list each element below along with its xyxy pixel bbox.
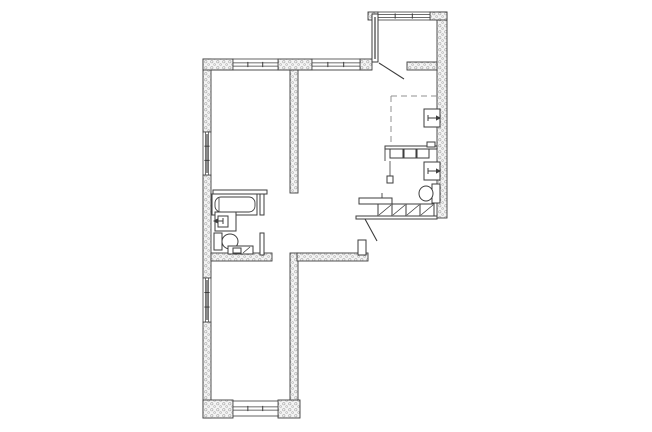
toilet-tank [214, 233, 222, 250]
bottom-wall-right [278, 400, 300, 418]
entry-top-strip [359, 198, 392, 204]
floor-plan-drawing [0, 0, 652, 432]
kitchen-side-box [387, 176, 393, 183]
top-window-right [312, 59, 360, 70]
bathtub-inner [215, 197, 255, 212]
bathroom-wall-top [213, 190, 267, 194]
left-wall-middle [203, 175, 211, 278]
entry-door-leaf [365, 219, 377, 241]
bathroom-wall-right-lower [260, 233, 264, 255]
interior-wall-lower [290, 253, 298, 400]
bottom-wall-left [203, 400, 233, 418]
kitchen-counter-end-box [427, 142, 435, 147]
balcony-window [378, 12, 430, 20]
balcony-door-leaf [379, 63, 404, 79]
top-window-left [233, 59, 278, 70]
interior-wall-upper [290, 70, 298, 193]
balcony-bottom-wall [407, 62, 437, 70]
left-window-upper [203, 132, 211, 175]
floor-plan-page [0, 0, 652, 432]
bathroom-wall-right-upper [260, 194, 264, 215]
bottom-window [233, 401, 278, 416]
left-window-lower [203, 278, 211, 322]
washer-inner [233, 248, 241, 253]
plan-root [203, 12, 447, 418]
toilet2-bowl [419, 186, 433, 201]
hall-wall [297, 253, 368, 261]
entry-wall-stub [358, 240, 366, 255]
top-wall-segment-c [360, 59, 372, 70]
entry-bottom-band [356, 216, 437, 219]
kitchen-counter-box-3 [417, 149, 429, 158]
top-wall-segment-a [203, 59, 233, 70]
balcony-glass-bar [374, 17, 376, 59]
balcony-corner-right [430, 12, 447, 20]
kitchen-counter-box-2 [404, 149, 416, 158]
top-wall-segment-b [278, 59, 312, 70]
kitchen-counter-box-1 [390, 149, 403, 158]
